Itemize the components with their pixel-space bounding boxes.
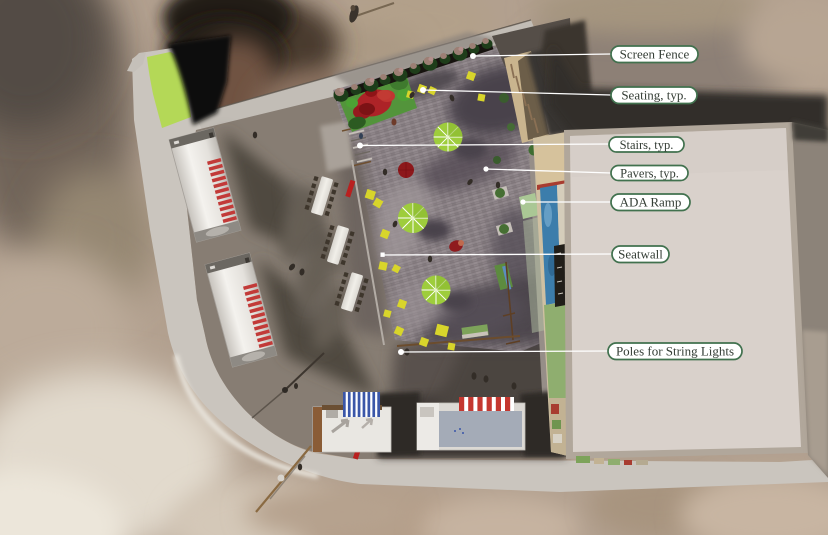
svg-text:Seating, typ.: Seating, typ.: [621, 88, 686, 103]
svg-text:Pavers, typ.: Pavers, typ.: [620, 166, 679, 180]
svg-text:Seatwall: Seatwall: [618, 247, 663, 262]
svg-text:Poles for String Lights: Poles for String Lights: [616, 344, 734, 359]
svg-text:Screen Fence: Screen Fence: [620, 47, 690, 62]
svg-text:Stairs, typ.: Stairs, typ.: [620, 138, 674, 152]
svg-text:ADA Ramp: ADA Ramp: [620, 195, 682, 210]
